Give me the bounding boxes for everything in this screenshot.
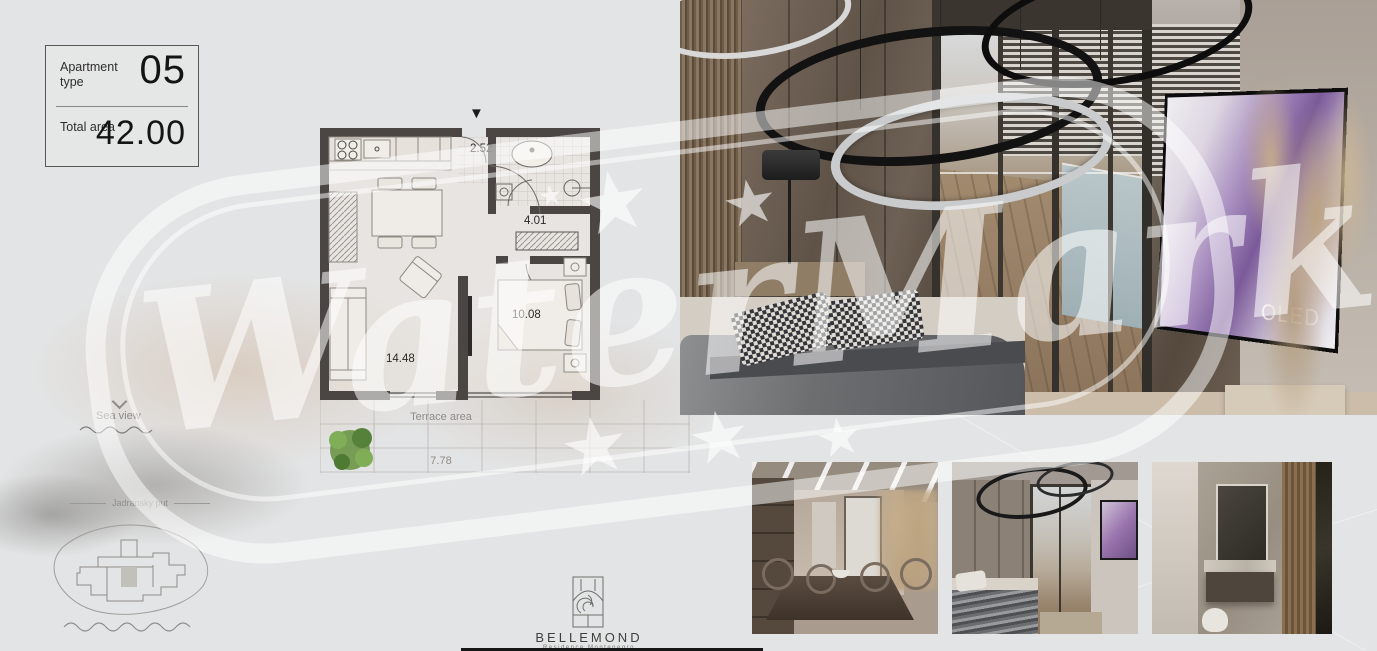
highlighted-unit [121, 567, 137, 587]
apartment-type-row: Apartment type 05 [46, 46, 198, 106]
t2-pillow [955, 570, 987, 592]
t2-bench [1040, 612, 1102, 634]
thumbnail-bathroom [1152, 462, 1332, 634]
t2-artwork [1100, 500, 1138, 560]
t3-vanity-cabinet [1206, 572, 1274, 602]
t3-mirror [1216, 484, 1268, 562]
sea-view-label: Sea view [96, 410, 141, 422]
t3-vanity-top [1204, 560, 1276, 572]
total-area-value: 42.00 [96, 114, 186, 153]
terrace-area-label: Terrace area [410, 411, 473, 423]
apartment-info-card: Apartment type 05 Total area 42.00 [45, 45, 199, 167]
bellemond-emblem-icon [563, 575, 613, 631]
terrace-area-value: 7.78 [430, 455, 451, 467]
floating-nightstand [735, 262, 865, 296]
main-interior-render: OLED [680, 0, 1377, 415]
t3-left-cabinet [1152, 462, 1200, 634]
render-pool [1062, 163, 1146, 330]
radiator [516, 232, 578, 250]
t1-chair [860, 562, 890, 592]
t1-chair [900, 558, 932, 590]
t1-chair [806, 564, 836, 594]
pampas-grass [1225, 50, 1377, 415]
road-dash [174, 503, 210, 504]
total-area-row: Total area 42.00 [46, 106, 198, 166]
watermark-star-icon: ★ [812, 408, 867, 467]
road-label-row: Jadransky put [70, 498, 210, 508]
living-area-label: 14.48 [386, 353, 415, 365]
road-dash [70, 503, 106, 504]
tv-panel [468, 296, 472, 356]
t3-toilet [1202, 608, 1228, 632]
thumbnail-dining [752, 462, 938, 634]
bedroom-area-label: 10.08 [512, 309, 541, 321]
table-lamp-shade [762, 150, 820, 180]
brochure-page: Apartment type 05 Total area 42.00 ▼ [0, 0, 1377, 651]
t1-pane [812, 502, 836, 568]
entry-area-label: 2.52 [470, 143, 492, 155]
table-lamp-stem [788, 168, 791, 264]
logo-name: BELLEMOND [509, 630, 669, 645]
floor-plan: 2.52 4.01 10.08 14.48 Terrace area 7.78 [320, 128, 700, 473]
wardrobe [329, 192, 357, 262]
terrace-grid [320, 400, 690, 473]
t2-bed [952, 578, 1038, 634]
bed [680, 297, 1025, 415]
apartment-type-value: 05 [140, 48, 187, 93]
sea-wave-icon [78, 422, 154, 436]
sea-view-arrow-icon [112, 394, 128, 410]
t1-chair [762, 558, 794, 590]
t3-wood-slats [1282, 462, 1316, 634]
t2-blanket [952, 590, 1038, 634]
sofa [330, 288, 366, 380]
thumbnail-bedroom [952, 462, 1138, 634]
terrace-tree [329, 428, 373, 470]
hall-area-label: 4.01 [524, 215, 546, 227]
road-label: Jadransky put [112, 498, 168, 508]
sea-wave-bottom-icon [62, 618, 198, 636]
entry-direction-arrow: ▼ [469, 106, 484, 121]
t3-glass-panel [1316, 462, 1332, 634]
door-frame [1108, 30, 1113, 415]
terrace-doors [390, 393, 572, 397]
apartment-type-label: Apartment type [60, 60, 132, 90]
site-plan [35, 512, 225, 617]
